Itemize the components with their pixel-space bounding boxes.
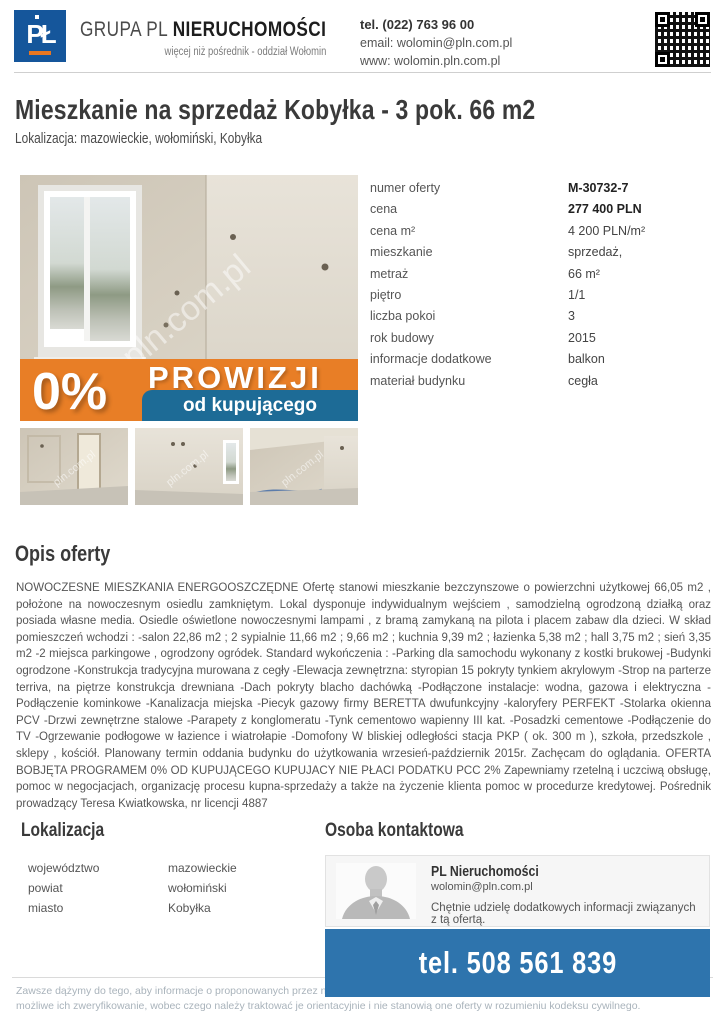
detail-value: cegła: [568, 371, 598, 392]
detail-value: 3: [568, 306, 575, 327]
detail-row: informacje dodatkowebalkon: [370, 349, 715, 370]
company-logo: PŁ: [14, 10, 66, 62]
location-subtitle: Lokalizacja: mazowieckie, wołomiński, Ko…: [15, 131, 262, 147]
thumbnail-3[interactable]: pln.com.pl: [250, 428, 358, 505]
brand-bold: NIERUCHOMOŚCI: [173, 18, 327, 41]
logo-underline: [29, 51, 51, 55]
detail-row: liczba pokoi3: [370, 306, 715, 327]
contact-heading: Osoba kontaktowa: [325, 820, 464, 842]
detail-value: 1/1: [568, 285, 585, 306]
location-value: wołomiński: [168, 878, 227, 898]
qr-finder-icon: [655, 52, 670, 67]
detail-label: numer oferty: [370, 178, 568, 199]
brand-tagline: więcej niż pośrednik - oddział Wołomin: [80, 46, 326, 58]
offer-details-table: numer ofertyM-30732-7 cena277 400 PLN ce…: [370, 178, 715, 392]
detail-label: metraż: [370, 264, 568, 285]
detail-value: sprzedaż,: [568, 242, 622, 263]
header-contact: tel. (022) 763 96 00 email: wolomin@pln.…: [360, 16, 512, 70]
location-heading: Lokalizacja: [21, 820, 104, 842]
brand-block: GRUPA PL NIERUCHOMOŚCI więcej niż pośred…: [80, 18, 326, 58]
detail-value: M-30732-7: [568, 178, 628, 199]
detail-row: rok budowy2015: [370, 328, 715, 349]
location-table: województwomazowieckie powiatwołomiński …: [28, 858, 237, 918]
agent-name: PL Nieruchomości: [431, 863, 539, 880]
description-text: NOWOCZESNE MIESZKANIA ENERGOOSZCZĘDNE Of…: [16, 580, 711, 812]
detail-label: piętro: [370, 285, 568, 306]
detail-label: cena m²: [370, 221, 568, 242]
detail-row: metraż66 m²: [370, 264, 715, 285]
location-section: Lokalizacja województwomazowieckie powia…: [21, 820, 237, 918]
header-phone: tel. (022) 763 96 00: [360, 16, 512, 34]
photo-thumbnails: pln.com.pl pln.com.pl: [20, 428, 358, 505]
detail-label: rok budowy: [370, 328, 568, 349]
detail-value: 2015: [568, 328, 596, 349]
contact-section: Osoba kontaktowa PL Nieruchomości wolomi…: [325, 820, 710, 997]
detail-label: informacje dodatkowe: [370, 349, 568, 370]
location-value: Kobyłka: [168, 898, 211, 918]
brand-name: GRUPA PL NIERUCHOMOŚCI: [80, 18, 326, 42]
header-www-link[interactable]: www: wolomin.pln.com.pl: [360, 52, 512, 70]
contact-card: PL Nieruchomości wolomin@pln.com.pl Chęt…: [325, 855, 710, 927]
location-value: mazowieckie: [168, 858, 237, 878]
page-title: Mieszkanie na sprzedaż Kobyłka - 3 pok. …: [15, 94, 535, 126]
detail-value: 4 200 PLN/m²: [568, 221, 645, 242]
detail-row: materiał budynkucegła: [370, 371, 715, 392]
agent-avatar: [336, 863, 416, 919]
header: PŁ GRUPA PL NIERUCHOMOŚCI więcej niż poś…: [0, 0, 725, 73]
offer-page: PŁ GRUPA PL NIERUCHOMOŚCI więcej niż poś…: [0, 0, 725, 1024]
detail-label: cena: [370, 199, 568, 220]
location-row: województwomazowieckie: [28, 858, 237, 878]
location-label: miasto: [28, 898, 168, 918]
detail-row: numer ofertyM-30732-7: [370, 178, 715, 199]
od-kupujacego-label: od kupującego: [183, 395, 317, 416]
brand-prefix: GRUPA PL: [80, 18, 173, 41]
location-label: województwo: [28, 858, 168, 878]
detail-value: 277 400 PLN: [568, 199, 642, 220]
footer-line-2: możliwe ich zweryfikowanie, wobec czego …: [16, 999, 709, 1014]
main-photo[interactable]: pln.com.pl 0% PROWIZJI od kupującego: [20, 175, 358, 421]
phone-number: tel. 508 561 839: [418, 929, 616, 997]
zero-percent-label: 0%: [32, 363, 107, 421]
qr-code-icon: [655, 12, 710, 67]
header-email-link[interactable]: email: wolomin@pln.com.pl: [360, 34, 512, 52]
description-heading: Opis oferty: [15, 541, 110, 567]
location-row: miastoKobyłka: [28, 898, 237, 918]
commission-banner: 0% PROWIZJI od kupującego: [20, 359, 358, 421]
detail-value: balkon: [568, 349, 605, 370]
qr-finder-icon: [695, 12, 710, 27]
thumbnail-1[interactable]: pln.com.pl: [20, 428, 128, 505]
detail-label: mieszkanie: [370, 242, 568, 263]
thumbnail-2[interactable]: pln.com.pl: [135, 428, 243, 505]
detail-row: cena277 400 PLN: [370, 199, 715, 220]
detail-row: mieszkaniesprzedaż,: [370, 242, 715, 263]
detail-label: liczba pokoi: [370, 306, 568, 327]
qr-finder-icon: [655, 12, 670, 27]
header-divider: [14, 72, 711, 73]
phone-bar[interactable]: tel. 508 561 839: [325, 929, 710, 997]
logo-monogram: PŁ: [14, 19, 66, 50]
detail-row: cena m²4 200 PLN/m²: [370, 221, 715, 242]
detail-label: materiał budynku: [370, 371, 568, 392]
location-row: powiatwołomiński: [28, 878, 237, 898]
od-kupujacego-badge: od kupującego: [142, 390, 358, 421]
detail-value: 66 m²: [568, 264, 600, 285]
person-silhouette-icon: [336, 863, 416, 919]
title-block: Mieszkanie na sprzedaż Kobyłka - 3 pok. …: [15, 94, 650, 148]
detail-row: piętro1/1: [370, 285, 715, 306]
location-label: powiat: [28, 878, 168, 898]
